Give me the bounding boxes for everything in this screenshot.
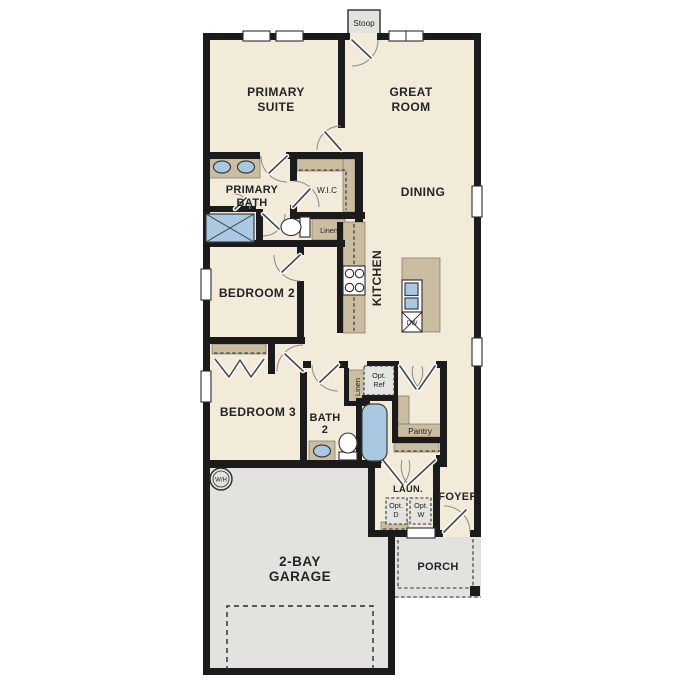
label-linen-hall: Linen: [353, 378, 362, 396]
label-bath2-1: BATH: [310, 412, 341, 424]
label-laundry: LAUN.: [393, 484, 423, 494]
label-dishwasher: DW: [407, 320, 419, 327]
label-primary-suite-2: SUITE: [257, 100, 294, 114]
label-garage-1: 2-BAY: [279, 554, 321, 569]
label-primary-suite-1: PRIMARY: [247, 85, 305, 99]
window-primary-suite-2: [276, 31, 303, 41]
label-porch: PORCH: [417, 561, 458, 573]
floor-plan-svg: Stoop PRIMARY SUITE GREAT ROOM PRIMARY B…: [0, 0, 687, 687]
label-kitchen: KITCHEN: [370, 250, 384, 306]
bath2-sink: [314, 445, 331, 457]
label-great-room-2: ROOM: [392, 100, 431, 114]
window-dining-south: [472, 338, 482, 366]
stove: [343, 266, 365, 295]
window-laundry: [407, 528, 435, 538]
window-bedroom3: [201, 371, 211, 402]
label-foyer: FOYER: [438, 491, 477, 503]
label-bedroom2: BEDROOM 2: [219, 286, 295, 300]
label-great-room-1: GREAT: [389, 85, 432, 99]
wic-shelf-right: [343, 159, 355, 212]
toilet-bath2: [339, 433, 357, 460]
label-dining: DINING: [401, 185, 445, 199]
label-opt-w-2: W: [418, 510, 425, 519]
label-opt-ref-2: Ref: [373, 380, 385, 389]
label-bath2-2: 2: [322, 424, 328, 436]
label-primary-bath-1: PRIMARY: [226, 184, 279, 196]
island-sink: [402, 280, 422, 312]
toilet-primary: [281, 217, 310, 237]
label-water-heater: W/H: [215, 478, 227, 484]
label-bedroom3: BEDROOM 3: [220, 405, 296, 419]
label-garage-2: GARAGE: [269, 569, 331, 584]
vanity-sink-left: [214, 161, 231, 173]
label-opt-d-2: D: [393, 510, 398, 519]
porch-post: [470, 586, 480, 596]
shower: [206, 214, 254, 242]
label-opt-ref-1: Opt.: [372, 371, 386, 380]
label-opt-w-1: Opt.: [414, 501, 428, 510]
label-wic: W.I.C: [317, 186, 337, 195]
vanity-sink-right: [238, 161, 255, 173]
label-stoop: Stoop: [353, 19, 375, 28]
label-opt-d-1: Opt.: [389, 501, 403, 510]
window-bedroom2: [201, 269, 211, 300]
tub: [362, 404, 387, 461]
label-linen-bath1: Linen: [320, 226, 338, 235]
floor-plan-canvas: Stoop PRIMARY SUITE GREAT ROOM PRIMARY B…: [0, 0, 687, 687]
label-primary-bath-2: BATH: [237, 197, 268, 209]
window-primary-suite-1: [243, 31, 270, 41]
window-dining: [472, 186, 482, 217]
label-pantry: Pantry: [408, 427, 433, 436]
